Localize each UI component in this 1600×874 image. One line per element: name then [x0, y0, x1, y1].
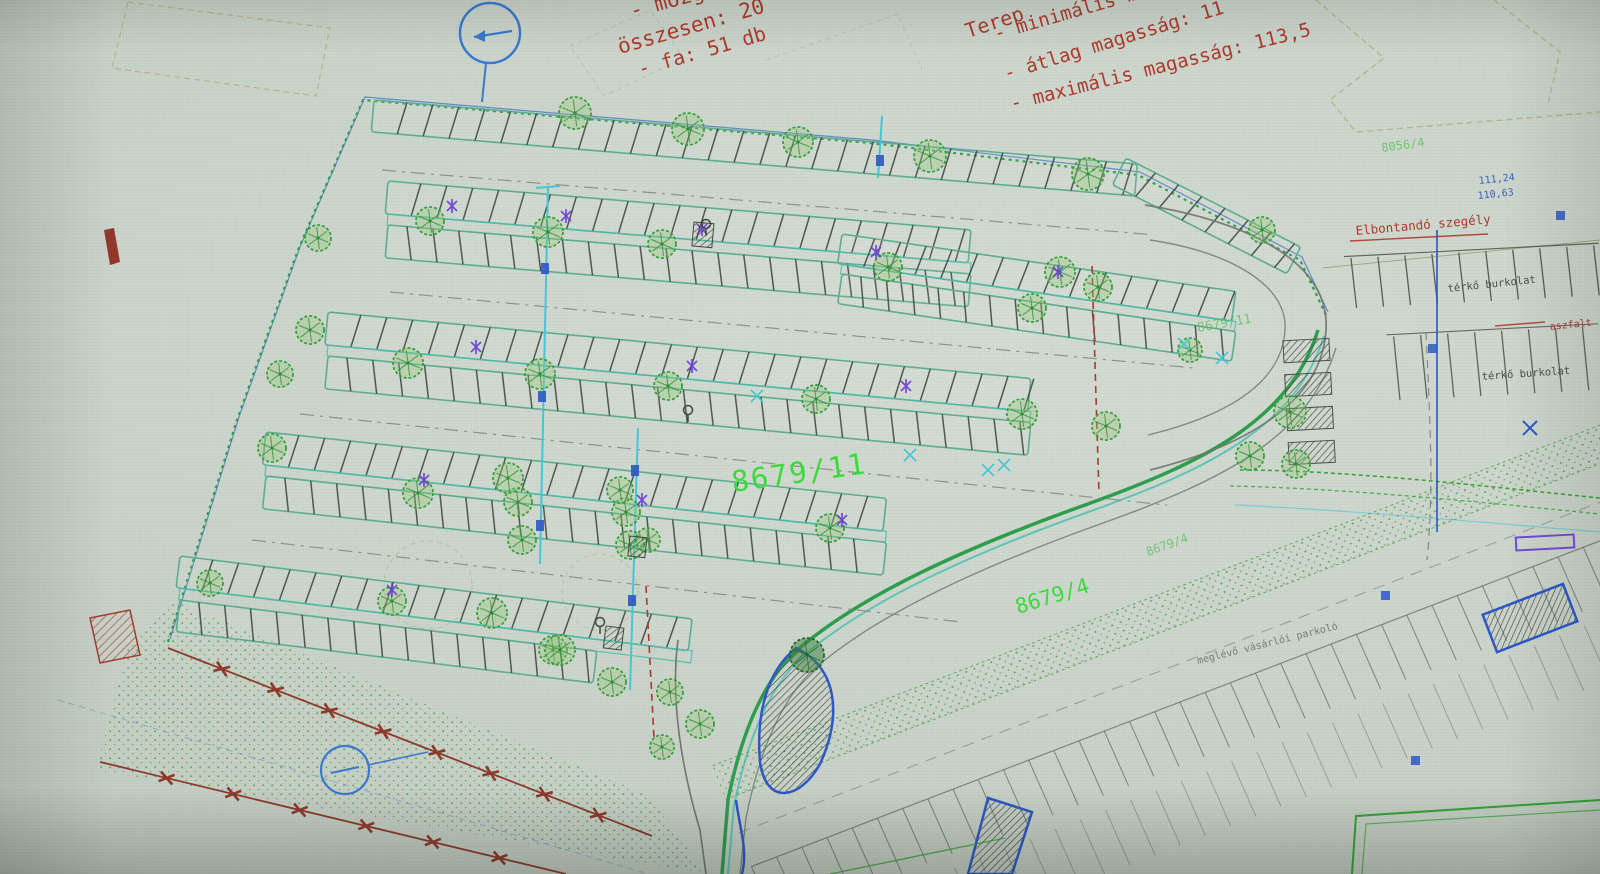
tree-symbol	[493, 463, 523, 493]
tree-symbol	[267, 361, 293, 387]
parking-rows	[176, 100, 1301, 683]
tree-symbol	[607, 477, 633, 503]
label-aszfalt: aszfalt	[1549, 318, 1592, 333]
site-plan-drawing: - mozgó összesen: 20 - fa: 51 db Terep -…	[0, 0, 1600, 874]
tree-symbol	[1072, 158, 1104, 190]
label-terko1: térkő burkolat	[1447, 274, 1536, 295]
tree-symbol	[416, 207, 444, 235]
label-parcel-road-small: 8679/4	[1144, 531, 1190, 559]
tree-symbol	[296, 316, 324, 344]
label-parcel-road: 8679/4	[1012, 574, 1092, 619]
tree-symbol	[1249, 217, 1275, 243]
tree-symbol	[648, 230, 676, 258]
tree-symbol	[1084, 273, 1112, 301]
tree-symbol	[559, 97, 591, 129]
tree-symbol	[1007, 399, 1037, 429]
tree-symbol	[1274, 396, 1306, 428]
tree-symbol	[1045, 257, 1075, 287]
label-meglevo: meglévő vásárlói parkoló	[1196, 620, 1339, 667]
tree-symbol	[598, 668, 626, 696]
tree-symbol	[403, 478, 433, 508]
survey-cross-icon	[982, 464, 994, 476]
survey-cross-icon	[998, 459, 1010, 471]
tree-symbol	[654, 372, 682, 400]
tree-symbol	[657, 679, 683, 705]
tree-symbol	[783, 127, 813, 157]
label-terko2: térkő burkolat	[1481, 365, 1570, 383]
tree-symbol	[1092, 412, 1120, 440]
tree-symbol	[802, 385, 830, 413]
tree-symbol	[1282, 450, 1310, 478]
tree-symbol	[874, 253, 902, 281]
plan-geometry	[58, 0, 1600, 874]
label-elev1: 111,24	[1478, 172, 1515, 187]
tree-symbol	[1018, 294, 1046, 322]
tree-symbol	[914, 140, 946, 172]
tree-symbol	[672, 113, 704, 145]
tree-symbol	[393, 348, 423, 378]
tree-symbol	[545, 635, 575, 665]
label-parcel-ne: 8056/4	[1380, 135, 1425, 155]
survey-cross-icon	[904, 449, 916, 461]
tree-symbol	[477, 598, 507, 628]
tree-symbol	[258, 434, 286, 462]
site-plan-photo: - mozgó összesen: 20 - fa: 51 db Terep -…	[0, 0, 1600, 874]
tree-symbol	[650, 735, 674, 759]
label-elev2: 110,63	[1477, 187, 1514, 202]
label-elbontando: Elbontandó szegély	[1355, 211, 1492, 238]
tree-symbol	[508, 526, 536, 554]
tree-symbol	[686, 710, 714, 738]
tree-symbol	[790, 638, 824, 672]
tree-symbol	[533, 217, 563, 247]
tree-symbol	[525, 359, 555, 389]
tree-symbol	[197, 570, 223, 596]
tree-symbol	[1236, 442, 1264, 470]
tree-symbol	[305, 225, 331, 251]
